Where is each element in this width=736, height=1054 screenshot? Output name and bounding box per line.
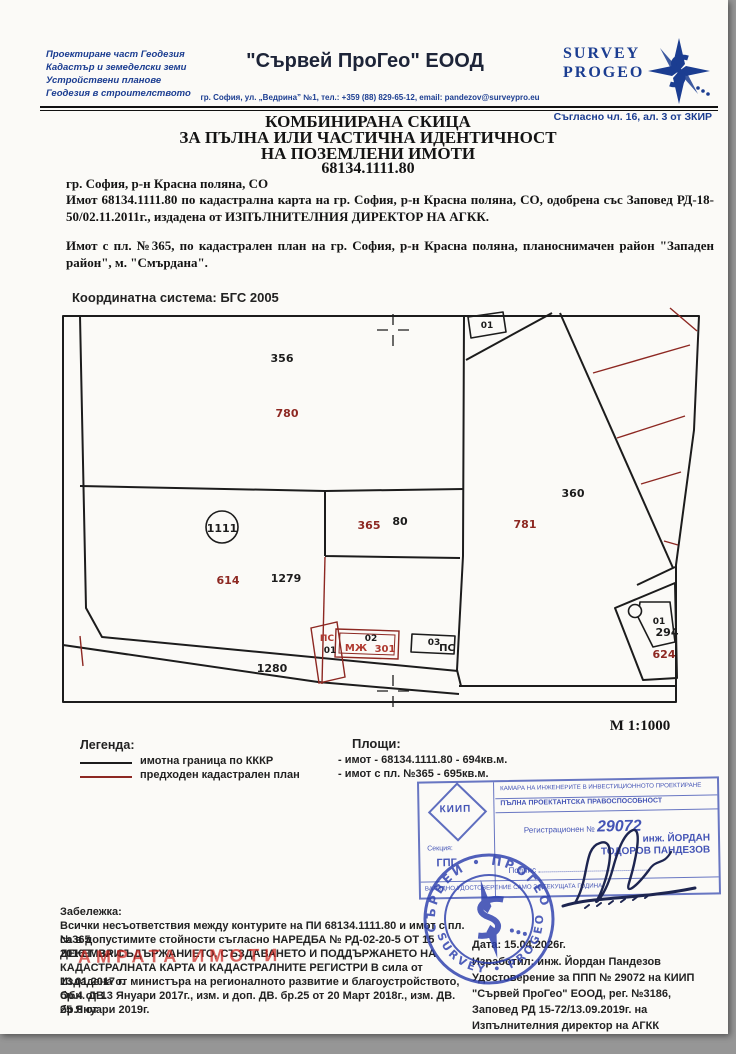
company-name: "Сървей ПроГео" ЕООД xyxy=(190,50,540,73)
parcel-label: 294 xyxy=(656,626,679,639)
area-item: - имот с пл. №365 - 695кв.м. xyxy=(338,768,489,780)
areas-title: Площи: xyxy=(352,736,401,751)
building-label: 01 xyxy=(653,617,666,627)
map-labels: 356 780 1111 614 1279 365 80 781 360 128… xyxy=(207,321,679,675)
legend-item-label: предходен кадастрален план xyxy=(140,769,300,781)
footer-director: Изпълнителния директор на АГКК xyxy=(472,1019,722,1035)
legend-title: Легенда: xyxy=(80,738,134,752)
footer-order: Заповед РД 15-72/13.09.2019г. на xyxy=(472,1003,722,1019)
parcel-label: 781 xyxy=(514,518,537,531)
parcel-label: 624 xyxy=(653,648,676,661)
note-line: 25 Януари 2019г. xyxy=(60,1003,480,1017)
service-line: Устройствени планове xyxy=(46,74,191,87)
red-stamp-text: АМРАТА ИМОТИ xyxy=(78,945,282,968)
parcel-label: 614 xyxy=(217,574,240,587)
logo-wordmark: SURVEY PROGEO xyxy=(563,44,644,82)
paragraph-1: Имот 68134.1111.80 по кадастрална карта … xyxy=(66,192,714,225)
service-line: Проектиране част Геодезия xyxy=(46,48,191,61)
location-line: гр. София, р-н Красна поляна, СО xyxy=(66,176,268,192)
document-page: Проектиране част Геодезия Кадастър и зем… xyxy=(0,0,728,1034)
building-label: ПС xyxy=(320,634,335,644)
parcel-label: 356 xyxy=(271,352,294,365)
company-address: гр. София, ул. „Ведрина” №1, тел.: +359 … xyxy=(120,93,620,102)
parcel-label: 360 xyxy=(562,487,585,500)
building-label: 01 xyxy=(481,321,494,331)
legend-item-label: имотна граница по КККР xyxy=(140,755,273,767)
compass-star-icon xyxy=(648,38,710,104)
parcel-label: 1279 xyxy=(271,572,302,585)
legend-line-red xyxy=(80,776,132,778)
parcel-label: 780 xyxy=(276,407,299,420)
service-line: Кадастър и земеделски земи xyxy=(46,61,191,74)
building-label: МЖ xyxy=(345,643,368,654)
building-label: 01 xyxy=(324,646,337,656)
parcel-label: 1280 xyxy=(257,662,288,675)
area-item: - имот - 68134.1111.80 - 694кв.м. xyxy=(338,754,507,766)
paragraph-2: Имот с пл. №365, по кадастрален план на … xyxy=(66,238,714,271)
kiip-logo-text: КИИП xyxy=(427,803,483,815)
signature xyxy=(545,808,725,918)
building-label: 301 xyxy=(375,644,396,655)
parcel-label: 365 xyxy=(358,519,381,532)
parcel-label: 80 xyxy=(392,515,408,528)
map-boundaries-red xyxy=(80,308,697,684)
cadastral-map: 356 780 1111 614 1279 365 80 781 360 128… xyxy=(50,300,720,712)
map-scale: М 1:1000 xyxy=(560,718,720,735)
building-label: ПС xyxy=(439,643,455,654)
building-label: 02 xyxy=(365,634,378,644)
legend-line-black xyxy=(80,762,132,764)
parcel-label: 1111 xyxy=(207,522,238,535)
